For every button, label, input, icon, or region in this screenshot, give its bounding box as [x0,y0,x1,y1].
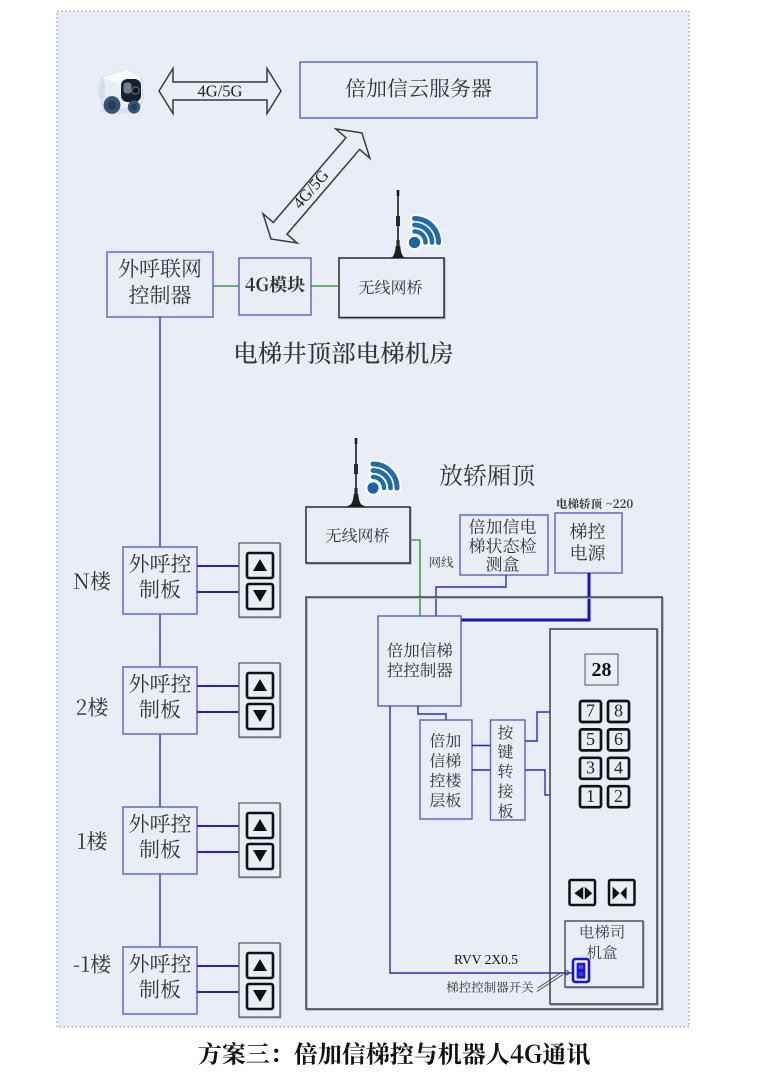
svg-text:7: 7 [586,701,595,721]
svg-text:28: 28 [592,659,612,681]
svg-text:4: 4 [614,758,623,778]
svg-text:1: 1 [586,786,595,806]
svg-text:4G/5G: 4G/5G [198,82,243,101]
svg-text:3: 3 [586,758,595,778]
svg-text:RVV 2X0.5: RVV 2X0.5 [454,952,518,967]
svg-text:5: 5 [586,729,595,749]
svg-text:6: 6 [614,729,623,749]
svg-text:8: 8 [614,701,623,721]
svg-text:2: 2 [614,786,623,806]
